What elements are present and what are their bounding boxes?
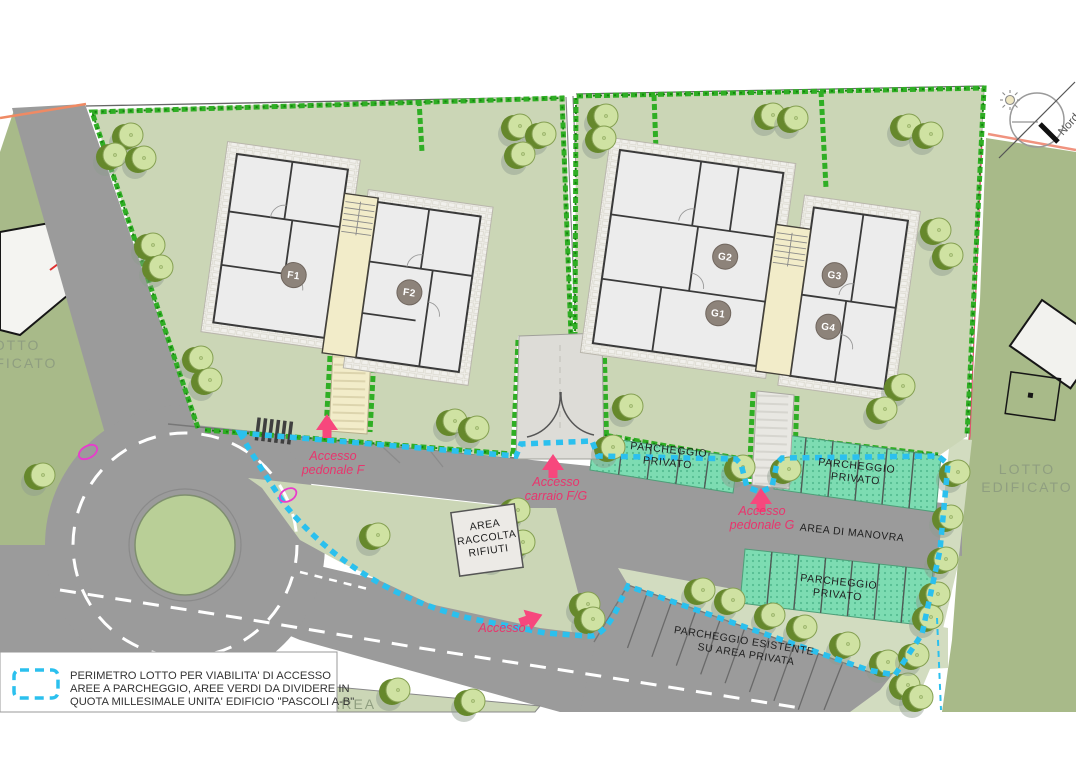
site-plan-canvas: F1 F2 G2 G1 G3 G4 xyxy=(0,0,1076,780)
svg-text:G1: G1 xyxy=(710,308,726,321)
svg-text:G3: G3 xyxy=(827,270,843,283)
svg-text:QUOTA MILLESIMALE UNITA' EDIFI: QUOTA MILLESIMALE UNITA' EDIFICIO "PASCO… xyxy=(70,696,354,708)
svg-text:carraio F/G: carraio F/G xyxy=(525,489,588,503)
svg-text:G2: G2 xyxy=(717,251,733,264)
svg-text:AREE A PARCHEGGIO, AREE VERDI: AREE A PARCHEGGIO, AREE VERDI DA DIVIDER… xyxy=(70,683,350,695)
svg-text:pedonale G: pedonale G xyxy=(729,518,795,532)
site-plan-drawing: F1 F2 G2 G1 G3 G4 xyxy=(0,0,1076,780)
svg-text:G4: G4 xyxy=(820,321,836,334)
svg-text:Accesso: Accesso xyxy=(477,621,525,635)
sun-icon xyxy=(1000,90,1020,110)
svg-text:F2: F2 xyxy=(402,287,416,300)
svg-text:EDIFICATO: EDIFICATO xyxy=(0,355,57,371)
svg-text:LOTTO: LOTTO xyxy=(0,337,40,353)
svg-text:Accesso: Accesso xyxy=(308,449,356,463)
svg-text:EDIFICATO: EDIFICATO xyxy=(981,479,1072,495)
svg-text:PERIMETRO LOTTO PER VIABILITA': PERIMETRO LOTTO PER VIABILITA' DI ACCESS… xyxy=(70,670,331,682)
svg-text:Accesso: Accesso xyxy=(737,504,785,518)
svg-text:LOTTO: LOTTO xyxy=(999,461,1055,477)
waste-area-box: AREA RACCOLTA RIFIUTI xyxy=(451,504,523,576)
svg-text:F1: F1 xyxy=(287,270,301,283)
roundabout-island xyxy=(135,495,235,595)
svg-text:Accesso: Accesso xyxy=(531,475,579,489)
svg-text:pedonale F: pedonale F xyxy=(301,463,366,477)
legend: PERIMETRO LOTTO PER VIABILITA' DI ACCESS… xyxy=(0,652,354,712)
